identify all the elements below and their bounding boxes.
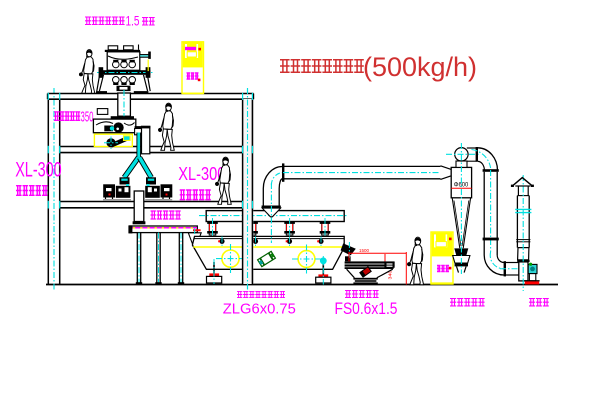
svg-text:350: 350 <box>81 109 94 126</box>
svg-text:1500: 1500 <box>359 248 369 254</box>
svg-text:FS0.6x1.5: FS0.6x1.5 <box>335 300 398 318</box>
svg-text:1.5: 1.5 <box>126 13 140 29</box>
svg-text:ZLG6x0.75: ZLG6x0.75 <box>223 302 296 318</box>
svg-text:(500kg/h): (500kg/h) <box>363 52 477 82</box>
svg-text:XL-300: XL-300 <box>15 158 62 181</box>
